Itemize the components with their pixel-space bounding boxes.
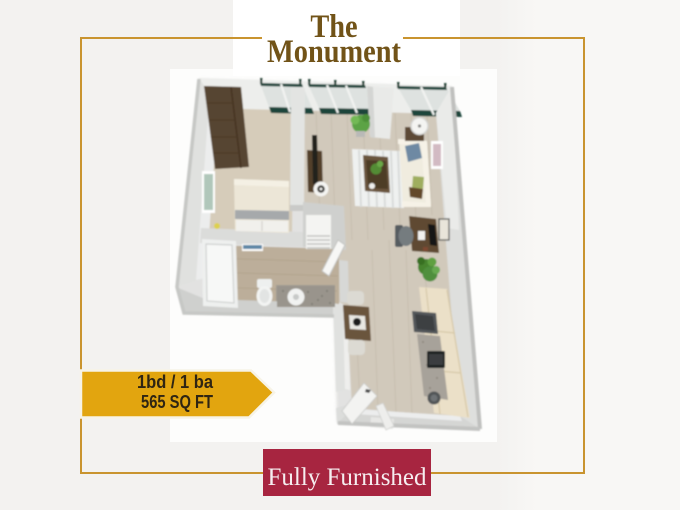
svg-text:1bd / 1 ba: 1bd / 1 ba (137, 372, 214, 392)
svg-text:565 SQ FT: 565 SQ FT (141, 392, 213, 412)
